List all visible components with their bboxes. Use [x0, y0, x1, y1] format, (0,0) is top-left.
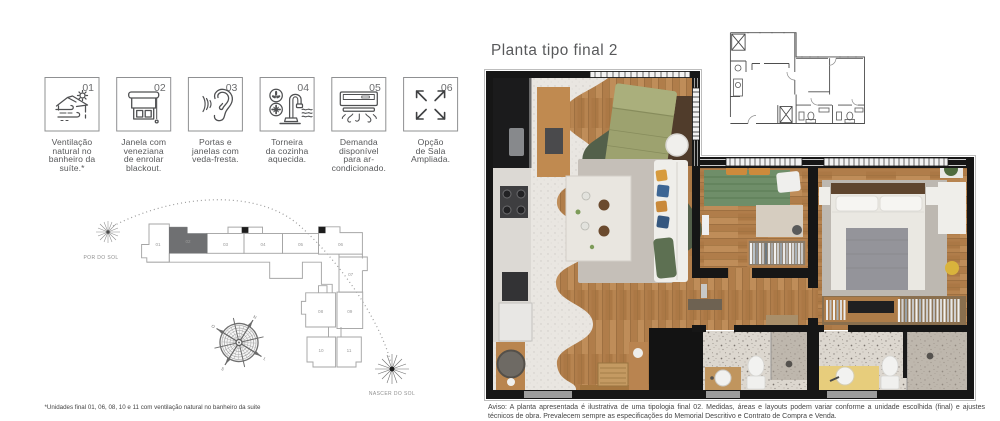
- svg-text:L: L: [263, 356, 268, 362]
- svg-text:05: 05: [298, 242, 304, 247]
- svg-text:03: 03: [223, 242, 229, 247]
- svg-text:POR DO SOL: POR DO SOL: [83, 255, 118, 261]
- svg-text:01: 01: [155, 242, 161, 247]
- svg-text:09: 09: [347, 309, 353, 314]
- svg-text:02: 02: [185, 239, 191, 244]
- svg-text:O: O: [210, 323, 216, 329]
- svg-text:01: 01: [82, 82, 94, 94]
- svg-text:06: 06: [338, 242, 344, 247]
- svg-text:NASCER DO SOL: NASCER DO SOL: [369, 391, 415, 397]
- svg-text:04: 04: [260, 242, 266, 247]
- svg-text:11: 11: [347, 348, 352, 353]
- svg-text:S: S: [220, 366, 225, 372]
- svg-text:04: 04: [297, 82, 309, 94]
- svg-text:03: 03: [226, 82, 238, 94]
- svg-text:08: 08: [318, 309, 324, 314]
- svg-text:10: 10: [318, 348, 324, 353]
- svg-text:N: N: [252, 314, 257, 320]
- svg-text:07: 07: [348, 272, 354, 277]
